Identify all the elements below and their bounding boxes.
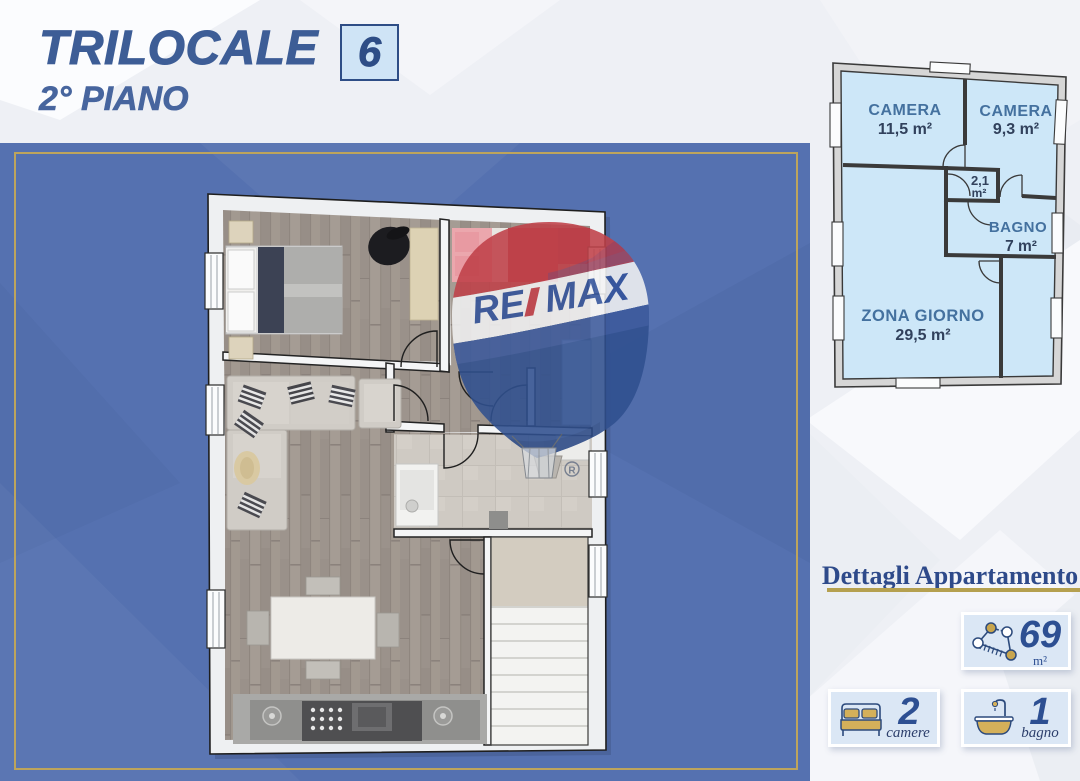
svg-text:9,3 m²: 9,3 m² [993,121,1039,138]
svg-text:BAGNO: BAGNO [989,219,1047,236]
svg-text:29,5 m²: 29,5 m² [895,327,950,344]
svg-text:m²: m² [972,186,987,200]
svg-text:CAMERA: CAMERA [979,103,1052,120]
svg-text:7 m²: 7 m² [1005,238,1037,255]
svg-text:CAMERA: CAMERA [868,102,941,119]
svg-text:ZONA GIORNO: ZONA GIORNO [861,307,984,325]
svg-text:11,5 m²: 11,5 m² [878,121,932,138]
